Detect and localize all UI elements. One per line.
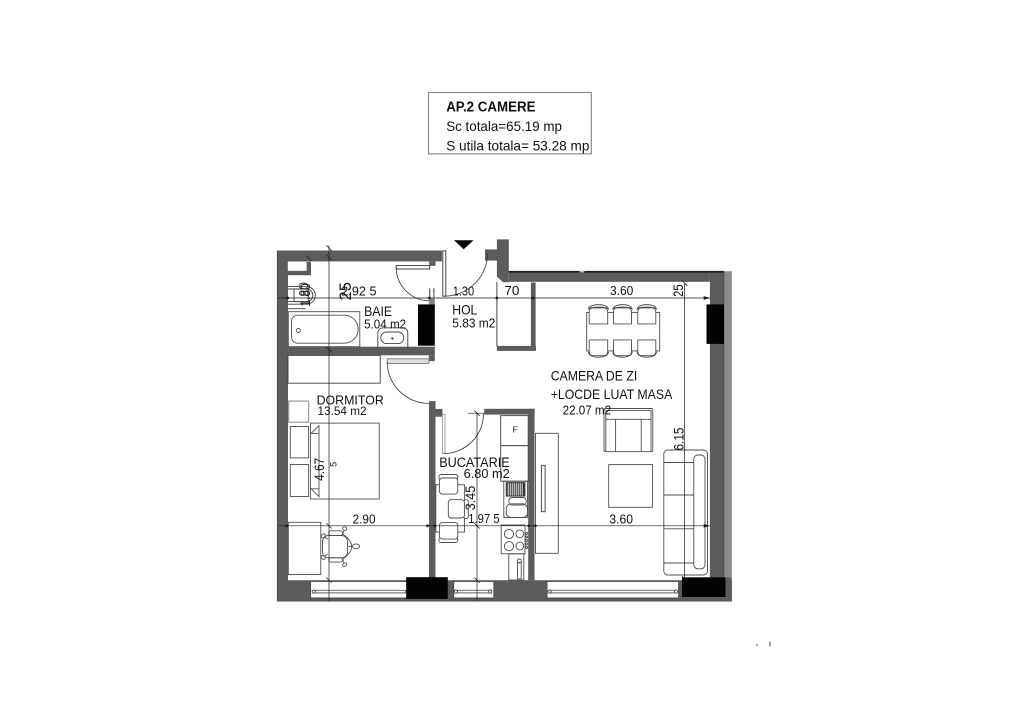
svg-text:Sc totala=65.19 mp: Sc totala=65.19 mp (446, 118, 562, 134)
svg-text:5: 5 (329, 462, 339, 467)
svg-text:HOL: HOL (452, 301, 477, 317)
svg-text:6.15: 6.15 (671, 428, 686, 451)
svg-text:5.04 m2: 5.04 m2 (364, 318, 406, 332)
svg-text:3.45: 3.45 (463, 486, 478, 510)
svg-text:1.97 5: 1.97 5 (468, 511, 499, 526)
svg-text:1.30: 1.30 (453, 284, 474, 299)
svg-text:5.83 m2: 5.83 m2 (452, 316, 495, 330)
svg-text:S utila totala= 53.28 mp: S utila totala= 53.28 mp (446, 137, 589, 153)
svg-text:13.54 m2: 13.54 m2 (318, 404, 367, 418)
svg-text:4.67: 4.67 (312, 458, 327, 481)
svg-text:25: 25 (337, 282, 355, 300)
svg-text:1.80: 1.80 (298, 283, 313, 306)
svg-text:+LOCDE LUAT MASA: +LOCDE LUAT MASA (551, 386, 673, 402)
svg-text:6.80 m2: 6.80 m2 (464, 467, 510, 481)
svg-text:70: 70 (504, 283, 519, 298)
svg-text:2.90: 2.90 (353, 512, 376, 527)
svg-text:AP.2 CAMERE: AP.2 CAMERE (446, 100, 536, 116)
svg-text:3.60: 3.60 (609, 512, 633, 527)
svg-text:F: F (513, 425, 518, 435)
svg-text:22.07 m2: 22.07 m2 (563, 403, 612, 417)
svg-text:3.60: 3.60 (610, 283, 633, 298)
svg-text:25: 25 (670, 284, 686, 297)
svg-text:CAMERA DE ZI: CAMERA DE ZI (551, 368, 638, 384)
